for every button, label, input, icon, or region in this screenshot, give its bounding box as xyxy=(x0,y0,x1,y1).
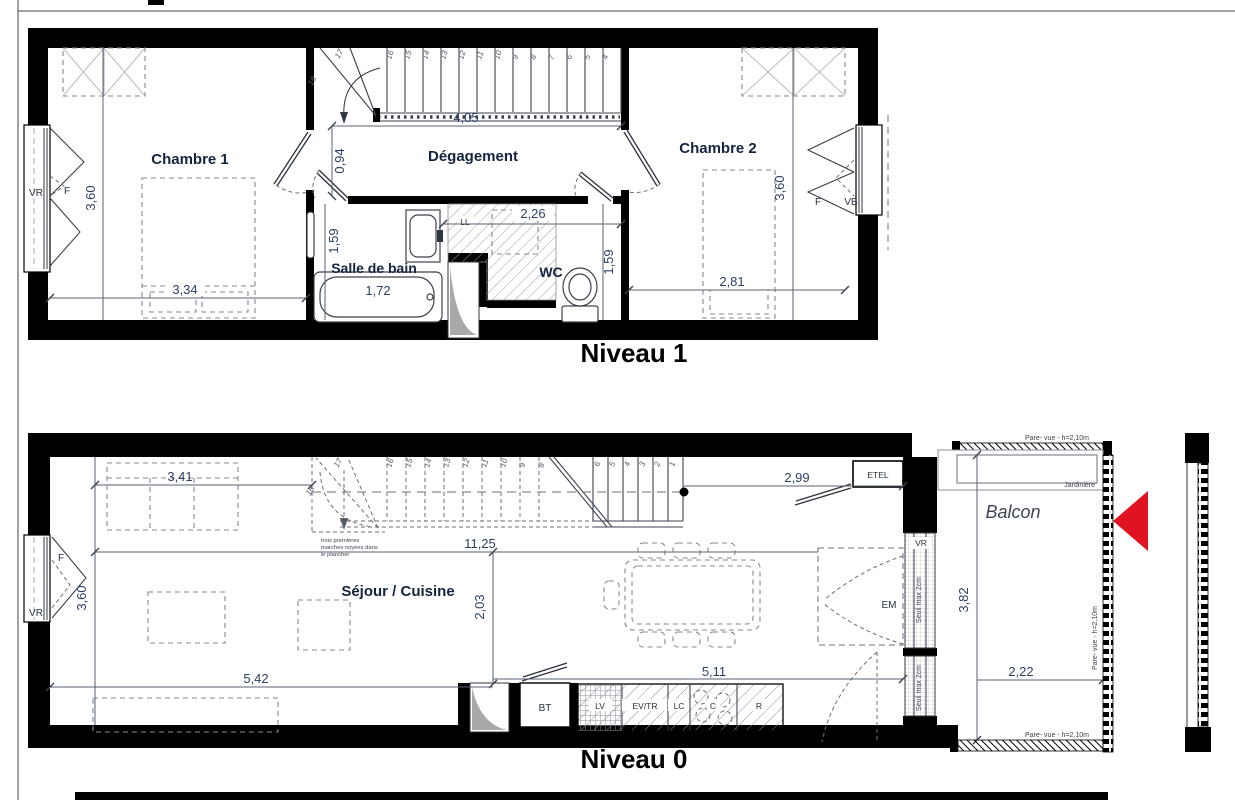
stair-arrow-head xyxy=(340,112,348,124)
casement-swing-dashed xyxy=(836,160,854,196)
bed-chambre2 xyxy=(703,170,775,318)
dim-chambre2-width: 2,81 xyxy=(719,274,744,289)
balcony-right-railing: Pare- vue - h=2,10m xyxy=(1092,455,1113,752)
stair-number: 10 xyxy=(498,457,509,469)
stair-note: le plancher xyxy=(321,552,349,558)
kitchen-counter: LV EV/TR LC C R xyxy=(578,684,783,731)
stair-number: 8 xyxy=(528,53,538,61)
stair-number: 15 xyxy=(402,49,413,61)
casement-swing-dashed xyxy=(50,176,64,196)
planter: Jardinière xyxy=(938,450,1103,490)
balcony-bottom-railing: Pare- vue - h=2,10m xyxy=(950,732,1103,752)
stair-number: 11 xyxy=(479,458,490,469)
dining-set xyxy=(604,543,760,647)
stair-number: 16 xyxy=(384,457,395,469)
stair-number: 13 xyxy=(438,49,449,61)
door-chambre2 xyxy=(624,130,660,193)
handrail-post xyxy=(680,488,689,497)
fridge-label: R xyxy=(756,701,762,711)
threshold-note: Seuil max 2cm xyxy=(916,665,923,711)
sheet-bottom-bar xyxy=(75,792,1108,800)
privacy-screen-note: Pare- vue - h=2,10m xyxy=(1025,435,1089,442)
lc-label: LC xyxy=(674,701,685,711)
stair-number: 3 xyxy=(637,460,647,468)
privacy-screen-note: Pare- vue - h=2,10m xyxy=(1092,606,1099,670)
stair-number: 10 xyxy=(492,49,503,61)
casement-swing xyxy=(50,198,80,266)
room-label-chambre1: Chambre 1 xyxy=(151,151,229,168)
dim-balcon-depth: 3,82 xyxy=(956,587,971,612)
stair-note: marches noyées dans xyxy=(321,545,378,551)
dim-degagement-depth: 0,94 xyxy=(332,148,347,173)
roller-shutter-label: VR xyxy=(915,538,927,548)
towel-radiator xyxy=(307,212,314,258)
side-table xyxy=(298,600,350,650)
sink-label: EV/TR xyxy=(632,701,657,711)
stair-number: 7 xyxy=(546,53,556,61)
dim-room-length: 11,25 xyxy=(464,536,496,551)
door-salle-de-bain xyxy=(313,170,348,201)
coffee-table xyxy=(148,592,225,643)
stair-number: 1 xyxy=(667,461,677,468)
room-label-sejour-cuisine: Séjour / Cuisine xyxy=(341,583,454,600)
dishwasher-label: LV xyxy=(595,701,605,711)
washbasin xyxy=(406,210,443,262)
dim-stair-width: 4,05 xyxy=(453,110,478,125)
door-chambre1 xyxy=(274,132,311,193)
level1-plan: VR F F VB xyxy=(24,28,888,368)
stair-number: 12 xyxy=(460,457,471,469)
stair-number: 2 xyxy=(652,460,662,468)
stair-number: 14 xyxy=(422,457,433,469)
shutter-label: VB xyxy=(844,197,858,208)
room-label-chambre2: Chambre 2 xyxy=(679,140,757,157)
level1-window-left: VR F xyxy=(24,125,84,272)
balcony: Pare- vue - h=2,10m Jardinière Balcon 3,… xyxy=(938,433,1211,752)
room-label-wc: WC xyxy=(539,264,562,280)
washing-machine-label: LL xyxy=(460,217,470,227)
dim-kitchen-depth: 2,03 xyxy=(472,594,487,619)
stair-number: 6 xyxy=(564,53,574,61)
dim-chambre2-height: 3,60 xyxy=(772,175,787,200)
casement-swing-dashed xyxy=(52,560,70,608)
stair-number: 5 xyxy=(582,53,592,61)
dim-wc-depth: 1,59 xyxy=(601,249,616,274)
closet-chambre1 xyxy=(63,48,145,96)
dim-chambre1-height: 3,60 xyxy=(83,185,98,210)
floor-plan-sheet: VR F F VB xyxy=(0,0,1235,800)
dim-left-to-stairs: 3,41 xyxy=(167,469,192,484)
roller-shutter-label: VR xyxy=(29,188,43,199)
dim-sejour-width: 5,42 xyxy=(243,671,268,686)
etel-cabinet: ETEL xyxy=(795,461,903,505)
level0-window-right-upper: VR Seuil max 2cm xyxy=(824,533,935,648)
room-label-degagement: Dégagement xyxy=(428,148,518,165)
casement-swing xyxy=(808,128,854,172)
stair-arrow-head xyxy=(340,518,348,530)
room-label-salle-de-bain: Salle de bain xyxy=(331,260,417,276)
cooktop-label: C xyxy=(710,701,716,711)
neighbor-separator xyxy=(1185,433,1211,752)
window-label: F xyxy=(64,186,70,197)
dim-bath-length: 1,72 xyxy=(365,283,390,298)
stair-note: trois premières xyxy=(321,538,359,544)
window-label: F xyxy=(815,197,821,208)
level1-title: Niveau 1 xyxy=(581,338,688,368)
stair-number: 12 xyxy=(456,49,467,61)
dim-bath-depth: 1,59 xyxy=(326,228,341,253)
floor-plan-drawing: VR F F VB xyxy=(0,0,1235,800)
dim-wc-width: 2,26 xyxy=(520,206,545,221)
toilet xyxy=(562,268,598,322)
level0-title: Niveau 0 xyxy=(581,744,688,774)
stair-number: 6 xyxy=(592,460,602,468)
stair-number: 5 xyxy=(607,460,617,468)
balcony-dimensions: 3,82 2,22 xyxy=(956,451,1107,744)
dim-balcon-width: 2,22 xyxy=(1008,664,1033,679)
stair-number: 13 xyxy=(441,457,452,469)
roller-shutter-label: VR xyxy=(29,608,43,619)
em-closet: EM xyxy=(818,548,903,645)
window-label: F xyxy=(58,553,64,564)
stair-number: 15 xyxy=(403,457,414,469)
dim-kitchen-width: 5,11 xyxy=(702,664,726,679)
stair-number: 4 xyxy=(622,460,632,468)
planter-label: Jardinière xyxy=(1064,482,1095,489)
stair-number: 17 xyxy=(332,456,345,469)
stair-number: 4 xyxy=(600,53,610,61)
bt-cabinet: BT xyxy=(520,683,570,727)
stair-number: 9 xyxy=(510,53,520,61)
stair-number: 9 xyxy=(517,461,527,469)
dim-stairs-to-wall: 2,99 xyxy=(784,470,809,485)
stair-number: 17 xyxy=(333,47,346,60)
etel-label: ETEL xyxy=(867,470,889,480)
stair-number: 11 xyxy=(474,50,485,61)
stair-number: 14 xyxy=(420,49,431,61)
level0-plan: F VR VR Seuil max 2cm Seuil max 2cm ETEL xyxy=(24,433,958,774)
level0-stairs: 17 18 16 15 14 13 12 11 10 9 8 6 5 4 3 2… xyxy=(304,456,689,558)
stair-number: 16 xyxy=(384,49,395,61)
em-label: EM xyxy=(882,600,897,611)
stair-number: 8 xyxy=(536,461,546,469)
bed-chambre1 xyxy=(142,178,255,318)
dim-chambre1-width: 3,34 xyxy=(172,282,197,297)
sheet-edge-mark xyxy=(148,0,164,5)
bt-label: BT xyxy=(539,703,552,714)
threshold-note: Seuil max 2cm xyxy=(916,577,923,623)
privacy-screen-note: Pare- vue - h=2,10m xyxy=(1025,732,1089,739)
dim-room-height: 3,60 xyxy=(74,585,89,610)
access-arrow-icon xyxy=(1113,491,1148,551)
room-label-balcon: Balcon xyxy=(985,502,1040,522)
